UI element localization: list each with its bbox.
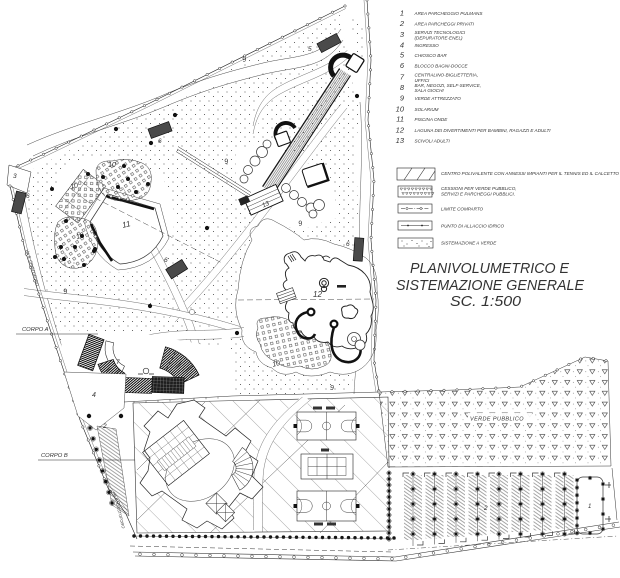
svg-text:9: 9	[330, 385, 334, 392]
svg-text:CENTRO POLIVALENTE CON ANNESSI: CENTRO POLIVALENTE CON ANNESSI IMPIANTI …	[441, 171, 619, 176]
svg-text:AREA PARCHEGGIO PULMANS: AREA PARCHEGGIO PULMANS	[414, 11, 484, 16]
svg-text:3: 3	[13, 173, 17, 180]
svg-text:PLANIVOLUMETRICO E: PLANIVOLUMETRICO E	[410, 261, 569, 277]
svg-text:SERVIZI E PARCHEGGI PUBBLICI.: SERVIZI E PARCHEGGI PUBBLICI.	[441, 192, 515, 197]
svg-text:5: 5	[308, 46, 312, 53]
svg-text:6: 6	[158, 138, 162, 145]
svg-text:12: 12	[313, 290, 322, 299]
svg-text:12: 12	[396, 125, 405, 134]
svg-text:PUNTO DI ALLACCIO IDRICO: PUNTO DI ALLACCIO IDRICO	[441, 224, 504, 229]
svg-text:PISCINA ONDE: PISCINA ONDE	[415, 117, 449, 122]
svg-text:INGRESSO: INGRESSO	[415, 43, 440, 48]
svg-text:4: 4	[400, 41, 404, 50]
svg-text:LAGUNA DEI DIVERTIMENTI PER BA: LAGUNA DEI DIVERTIMENTI PER BAMBINI, RAG…	[415, 128, 552, 133]
svg-text:CESSIONI PER VERDE PUBBLICO,: CESSIONI PER VERDE PUBBLICO,	[441, 186, 517, 191]
svg-text:7: 7	[116, 359, 120, 366]
svg-text:VERDE ATTREZZATO: VERDE ATTREZZATO	[415, 96, 462, 101]
svg-text:LIMITE COMPARTO: LIMITE COMPARTO	[441, 207, 484, 212]
svg-text:CHIOSCO BAR: CHIOSCO BAR	[415, 53, 448, 58]
svg-text:SALA GIOCHI: SALA GIOCHI	[415, 88, 445, 93]
svg-text:11: 11	[396, 115, 404, 124]
svg-text:1: 1	[400, 9, 404, 18]
svg-text:6: 6	[26, 193, 30, 200]
svg-text:BLOCCO BAGNI-DOCCE: BLOCCO BAGNI-DOCCE	[415, 64, 469, 69]
svg-text:SOLARIUM: SOLARIUM	[415, 107, 439, 112]
svg-text:2: 2	[483, 505, 488, 512]
svg-text:CENTRALINO-BIGLIETTERIA,: CENTRALINO-BIGLIETTERIA,	[415, 72, 479, 77]
svg-text:SC. 1:500: SC. 1:500	[450, 294, 521, 310]
svg-text:6: 6	[164, 257, 168, 264]
svg-text:VERDE PUBBLICO: VERDE PUBBLICO	[470, 417, 524, 423]
svg-text:BAR, NEGOZI, SELF-SERVICE,: BAR, NEGOZI, SELF-SERVICE,	[415, 83, 482, 88]
svg-text:4: 4	[92, 392, 96, 399]
svg-text:SERVIZI TECNOLOGICI: SERVIZI TECNOLOGICI	[415, 30, 466, 35]
svg-text:10: 10	[396, 104, 405, 113]
svg-text:AREA PARCHEGGI PRIVATI: AREA PARCHEGGI PRIVATI	[414, 22, 475, 27]
svg-text:13: 13	[396, 136, 405, 145]
svg-text:2: 2	[399, 19, 405, 28]
svg-text:(DEPURATORE-ENEL): (DEPURATORE-ENEL)	[415, 35, 464, 40]
svg-text:SISTEMAZIONE GENERALE: SISTEMAZIONE GENERALE	[396, 278, 584, 294]
svg-text:CORPO B: CORPO B	[41, 453, 68, 459]
svg-text:CORPO A: CORPO A	[22, 327, 49, 333]
svg-text:SCIVOLI ADULTI: SCIVOLI ADULTI	[415, 138, 451, 143]
svg-text:1: 1	[588, 504, 591, 510]
svg-text:2: 2	[102, 423, 107, 430]
svg-text:10: 10	[108, 162, 116, 169]
svg-text:6: 6	[346, 241, 350, 248]
svg-text:SISTEMAZIONE A VERDE: SISTEMAZIONE A VERDE	[441, 241, 497, 246]
